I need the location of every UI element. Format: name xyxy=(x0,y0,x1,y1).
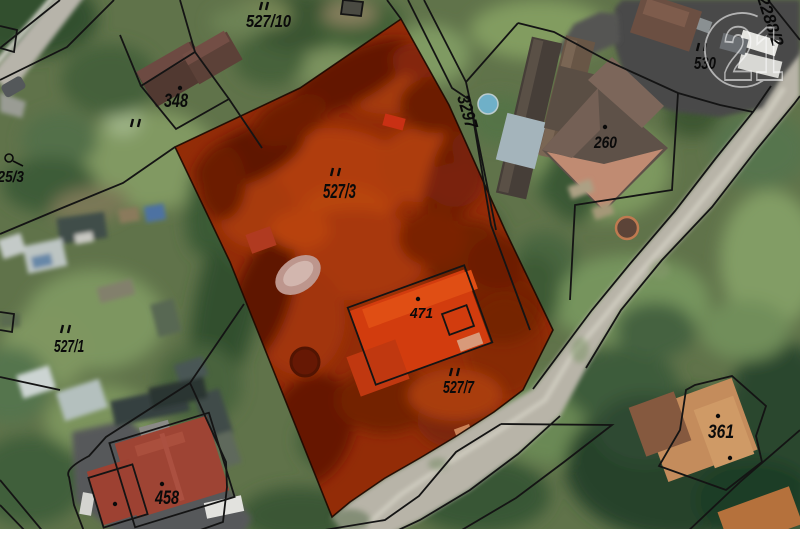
svg-text:260: 260 xyxy=(593,134,617,153)
svg-text:527/7: 527/7 xyxy=(443,378,475,398)
svg-text:525/3: 525/3 xyxy=(0,169,25,186)
svg-text:527/3: 527/3 xyxy=(323,180,356,202)
svg-text:348: 348 xyxy=(164,90,189,111)
svg-text:527/10: 527/10 xyxy=(246,12,291,32)
svg-text:471: 471 xyxy=(409,306,433,323)
svg-text:527/1: 527/1 xyxy=(54,337,84,357)
svg-text:361: 361 xyxy=(708,421,734,443)
svg-text:458: 458 xyxy=(154,487,179,508)
svg-text:21: 21 xyxy=(723,12,784,97)
